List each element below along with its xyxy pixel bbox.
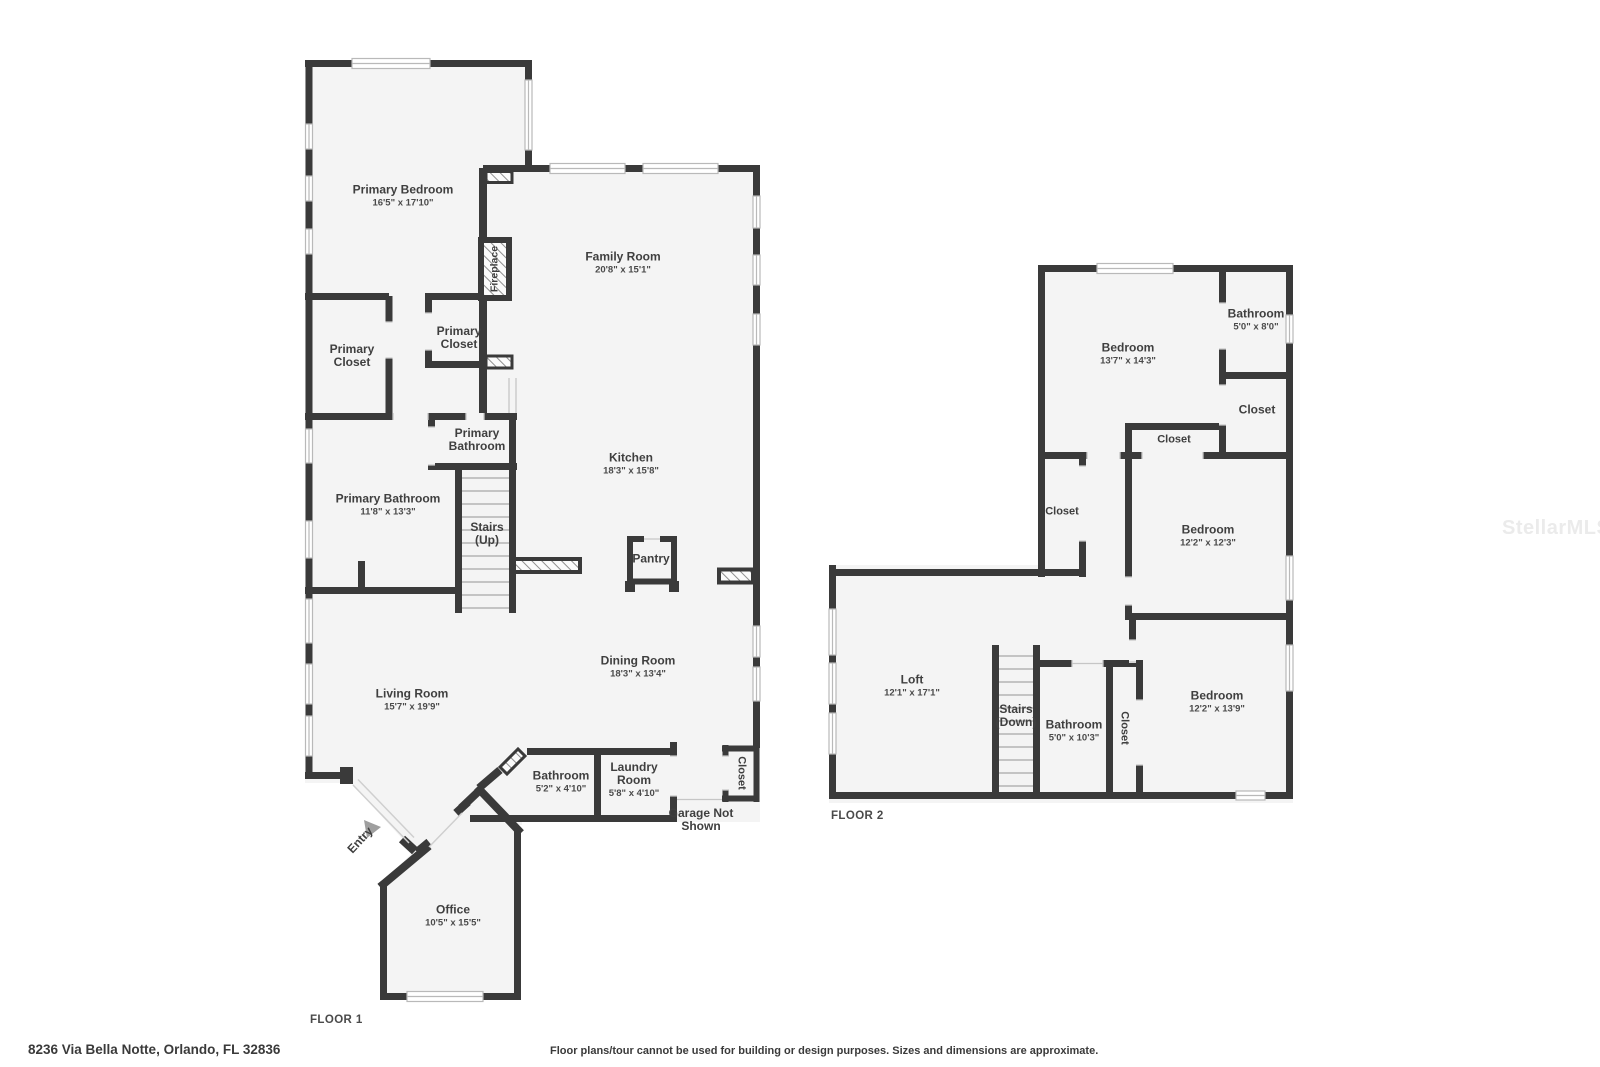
room-label-living-room: Living Room 15'7" x 19'9"	[352, 688, 472, 713]
room-label-primary-closet-left: Primary Closet	[320, 343, 384, 369]
room-label-closet-f2-vert: Closet	[1118, 698, 1131, 758]
room-label-closet-f2-left: Closet	[1032, 506, 1092, 519]
room-label-kitchen: Kitchen 18'3" x 15'8"	[571, 452, 691, 477]
room-label-garage-not-shown: Garage Not Shown	[662, 807, 740, 833]
room-label-closet-f2-right: Closet	[1227, 404, 1287, 417]
room-label-primary-bathroom: Primary Bathroom 11'8" x 13'3"	[313, 493, 463, 518]
room-label-family-room: Family Room 20'8" x 15'1"	[548, 251, 698, 276]
property-address: 8236 Via Bella Notte, Orlando, FL 32836	[28, 1042, 280, 1057]
room-label-fireplace: Fireplace	[489, 234, 502, 304]
stair-railing	[514, 559, 580, 572]
room-label-closet-f1: Closet	[735, 743, 748, 803]
stellar-mls-watermark: StellarMLS	[1502, 517, 1600, 540]
room-label-bathroom-f2-2: Bathroom 5'0" x 10'3"	[1041, 719, 1107, 744]
room-label-bedroom-f2-3: Bedroom 12'2" x 13'9"	[1157, 690, 1277, 715]
wall-counter	[719, 570, 753, 583]
room-label-stairs-up: Stairs (Up)	[463, 521, 511, 547]
floor1-tag: FLOOR 1	[310, 1014, 363, 1026]
room-label-bathroom-f1: Bathroom 5'2" x 4'10"	[511, 770, 611, 795]
room-label-primary-closet-mid: Primary Closet	[427, 325, 491, 351]
room-label-bathroom-f2-1: Bathroom 5'0" x 8'0"	[1211, 308, 1301, 333]
room-label-closet-f2-mid: Closet	[1144, 434, 1204, 447]
disclaimer-text: Floor plans/tour cannot be used for buil…	[550, 1045, 1098, 1057]
room-label-loft: Loft 12'1" x 17'1"	[857, 674, 967, 699]
room-label-pantry: Pantry	[621, 553, 681, 566]
room-label-office: Office 10'5" x 15'5"	[398, 904, 508, 929]
floor-plan-page: Primary Bedroom 16'5" x 17'10" Family Ro…	[0, 0, 1600, 1067]
room-label-primary-bedroom: Primary Bedroom 16'5" x 17'10"	[328, 184, 478, 209]
floor-plan-drawing	[0, 0, 1600, 1067]
room-label-laundry-room: Laundry Room 5'8" x 4'10"	[599, 761, 669, 799]
wall-niche	[486, 172, 512, 183]
room-label-dining-room: Dining Room 18'3" x 13'4"	[578, 655, 698, 680]
room-label-primary-bathroom-small: Primary Bathroom	[437, 427, 517, 453]
wall-niche	[486, 356, 512, 368]
floor2-tag: FLOOR 2	[831, 810, 884, 822]
room-label-bedroom-f2-1: Bedroom 13'7" x 14'3"	[1068, 342, 1188, 367]
room-label-stairs-down: Stairs (Down)	[990, 703, 1042, 729]
room-label-bedroom-f2-2: Bedroom 12'2" x 12'3"	[1148, 524, 1268, 549]
